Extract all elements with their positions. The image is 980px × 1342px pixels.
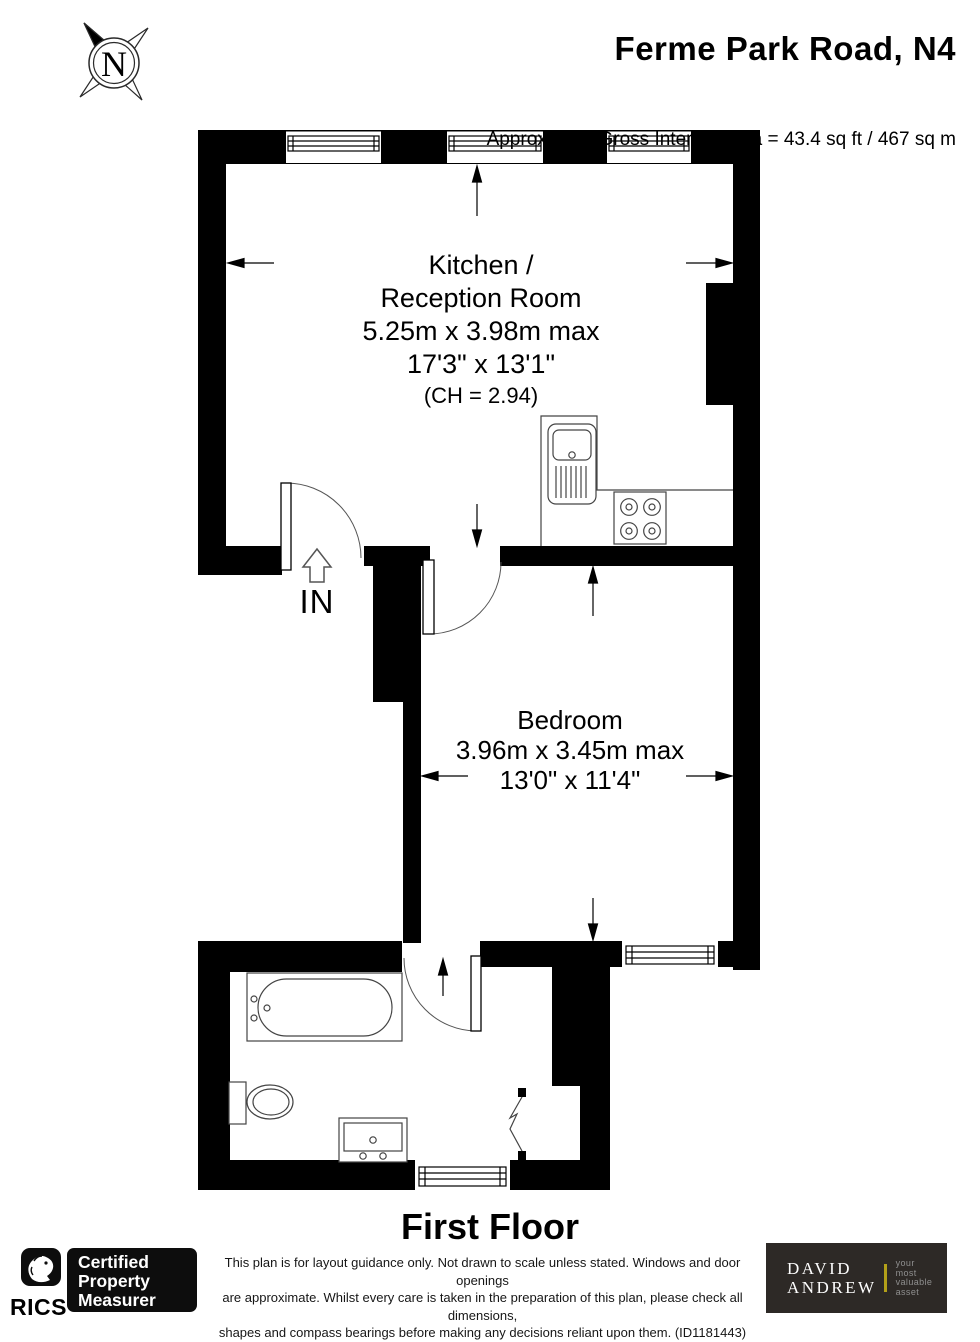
toilet [229, 1082, 293, 1124]
page-title: Ferme Park Road, N4 [615, 30, 956, 68]
tagline-word-4: asset [896, 1288, 933, 1298]
bedroom-name: Bedroom [370, 705, 770, 735]
agency-name-line1: DAVID [787, 1259, 877, 1278]
wash-basin [339, 1118, 407, 1162]
chimney-breast [706, 283, 733, 405]
niche-break-line [510, 1097, 522, 1151]
bedroom-label: Bedroom 3.96m x 3.45m max 13'0" x 11'4" [370, 705, 770, 795]
badge-line1: Certified [78, 1253, 197, 1272]
bathtub [247, 973, 402, 1041]
kitchen-dim-imperial: 17'3" x 13'1" [281, 348, 681, 381]
compass-north-letter: N [101, 44, 127, 84]
agency-tagline: your most valuable asset [896, 1259, 933, 1297]
bedroom-arrow-down [589, 898, 598, 940]
disclaimer-line2: are approximate. Whilst every care is ta… [200, 1289, 765, 1324]
window-bedroom [622, 941, 718, 967]
agency-accent-bar [884, 1264, 887, 1292]
entrance-label: IN [293, 583, 341, 621]
bathroom-arrow-up [439, 959, 448, 996]
kitchen-name-line1: Kitchen / [281, 249, 681, 282]
gross-internal-area: Approximate Gross Internal Area = 43.4 s… [487, 129, 956, 151]
wall-hall-block [373, 566, 421, 702]
bedroom-door [423, 560, 501, 634]
bathroom-fixtures [229, 973, 407, 1162]
wall-bathroom-bottom-left [198, 1160, 415, 1190]
wall-kitchen-bottom-mid [364, 546, 430, 566]
disclaimer-line1: This plan is for layout guidance only. N… [200, 1254, 765, 1289]
kitchen-name-line2: Reception Room [281, 282, 681, 315]
wall-kitchen-bottom-right [500, 546, 760, 566]
floor-plan: N [0, 0, 980, 1336]
wall-bedroom-bottom-right [718, 941, 760, 967]
wall-bathroom-bottom-right [510, 1160, 610, 1190]
wall-niche-right [580, 1086, 610, 1160]
disclaimer-line3: shapes and compass bearings before makin… [200, 1324, 765, 1342]
bedroom-dim-imperial: 13'0" x 11'4" [370, 765, 770, 795]
wall-bathroom-right-column [552, 967, 610, 1086]
kitchen-arrow-up [473, 166, 482, 216]
kitchen-fixtures [541, 416, 733, 546]
rics-wordmark: RICS® [10, 1294, 72, 1321]
kitchen-ceiling-height: (CH = 2.94) [281, 381, 681, 411]
agency-logo: DAVID ANDREW your most valuable asset [766, 1243, 947, 1313]
kitchen-dim-metric: 5.25m x 3.98m max [281, 315, 681, 348]
disclaimer-text: This plan is for layout guidance only. N… [200, 1254, 765, 1342]
bedroom-dim-metric: 3.96m x 3.45m max [370, 735, 770, 765]
wall-entry-left [198, 546, 282, 575]
agency-name-line2: ANDREW [787, 1278, 877, 1297]
agency-name: DAVID ANDREW [787, 1259, 877, 1297]
kitchen-arrow-down [473, 504, 482, 546]
badge-line3: Measurer [78, 1291, 197, 1310]
entrance-arrow-icon [303, 549, 331, 582]
rics-lion-icon [10, 1247, 72, 1289]
bedroom-arrow-up [589, 567, 598, 616]
kitchen-hob [614, 492, 666, 544]
certified-property-measurer-badge: Certified Property Measurer [67, 1248, 197, 1312]
window-kitchen-1 [286, 132, 381, 164]
kitchen-arrow-left [228, 259, 274, 268]
kitchen-label: Kitchen / Reception Room 5.25m x 3.98m m… [281, 249, 681, 411]
wall-niche-nub-top [518, 1088, 526, 1097]
compass-icon: N [80, 23, 148, 100]
floor-title: First Floor [0, 1206, 980, 1248]
wall-kitchen-left [198, 130, 226, 546]
kitchen-arrow-right [686, 259, 732, 268]
wall-bathroom-left [198, 941, 230, 1190]
kitchen-sink [548, 424, 596, 504]
rics-logo: RICS® [10, 1247, 72, 1321]
wall-niche-nub-bottom [518, 1151, 526, 1160]
window-bathroom [415, 1160, 510, 1190]
wall-bedroom-bottom-left [480, 941, 622, 967]
badge-line2: Property [78, 1272, 197, 1291]
